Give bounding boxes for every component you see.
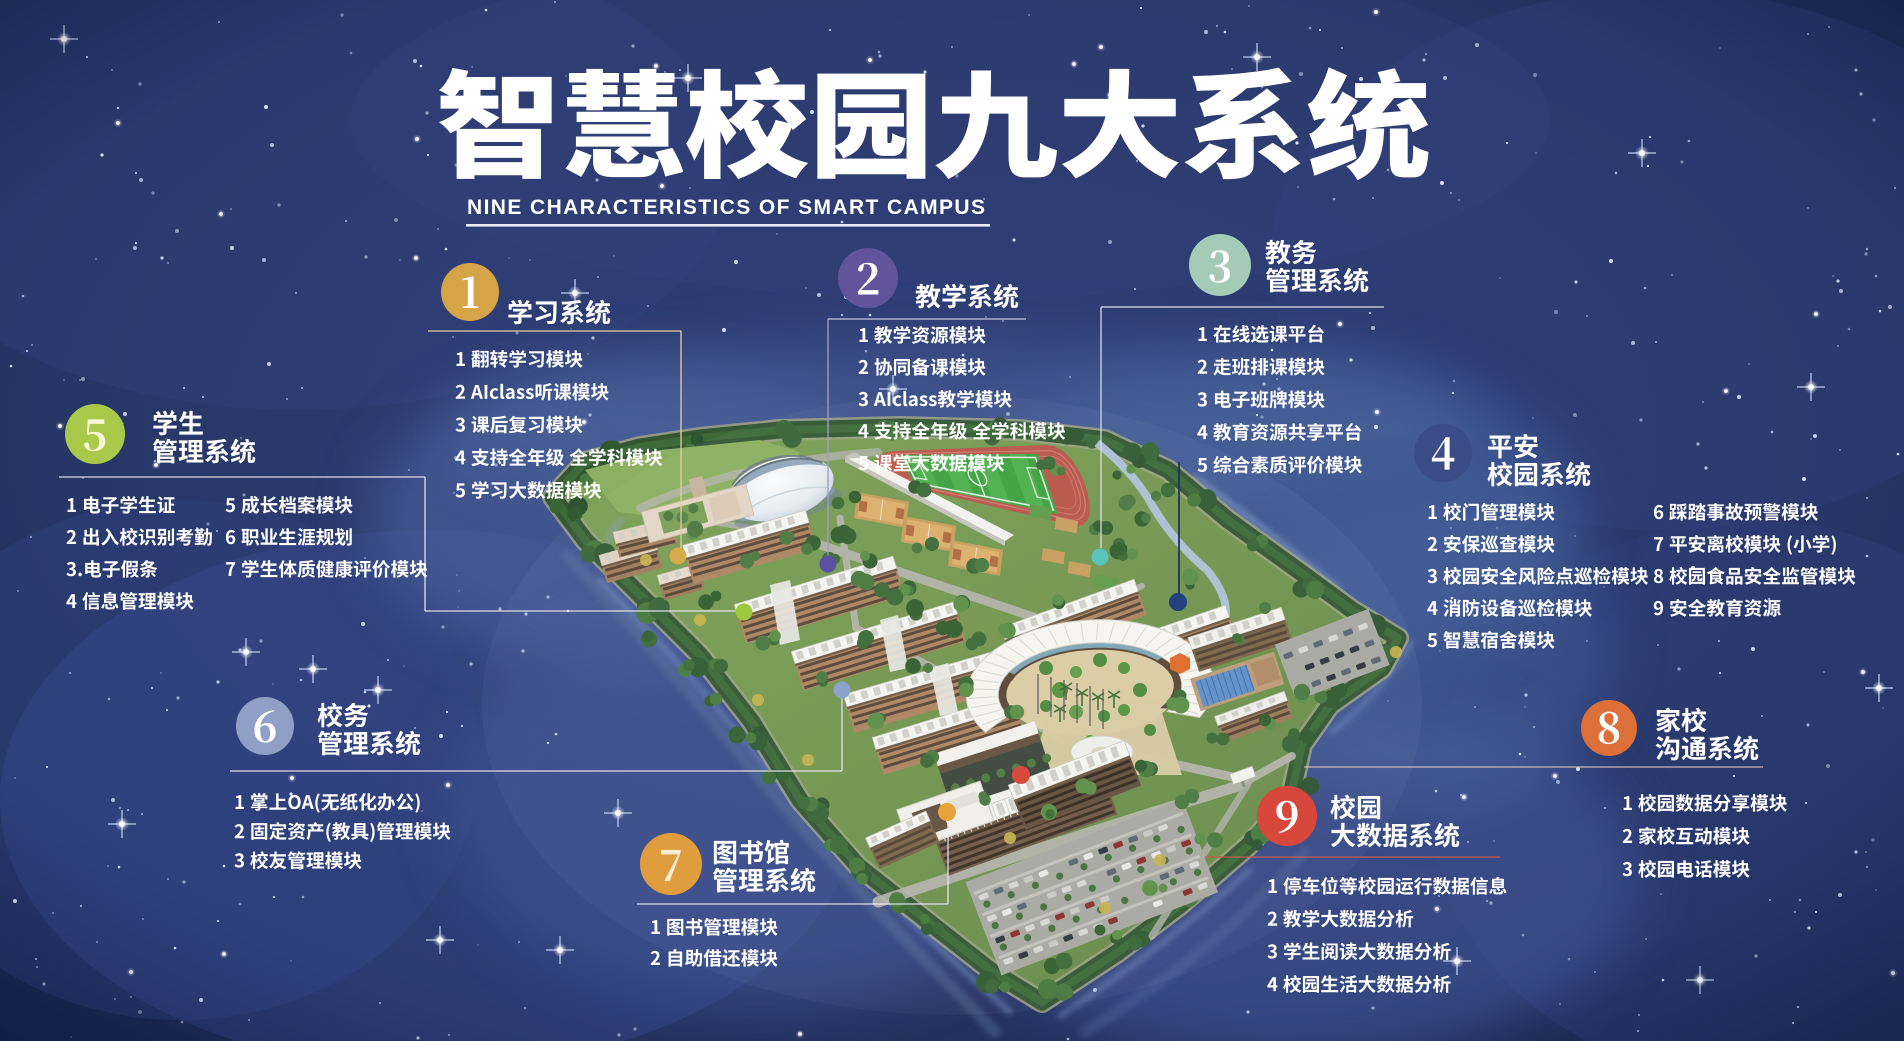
svg-text:NINE CHARACTERISTICS OF SMART: NINE CHARACTERISTICS OF SMART CAMPUS bbox=[467, 196, 986, 219]
